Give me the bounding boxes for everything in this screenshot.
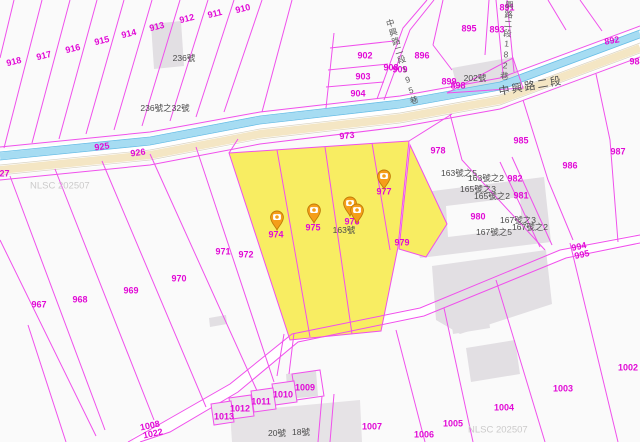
cadastral-map-canvas[interactable]: 9189179169159149139129119109279029039049… (0, 0, 640, 442)
marker-pin-icon (376, 168, 392, 190)
map-marker-pin[interactable] (269, 209, 285, 231)
map-marker-pin[interactable] (349, 202, 365, 224)
marker-pin-icon (349, 202, 365, 224)
marker-pin-icon (269, 209, 285, 231)
marker-pin-icon (306, 202, 322, 224)
map-marker-pin[interactable] (306, 202, 322, 224)
map-marker-pin[interactable] (376, 168, 392, 190)
